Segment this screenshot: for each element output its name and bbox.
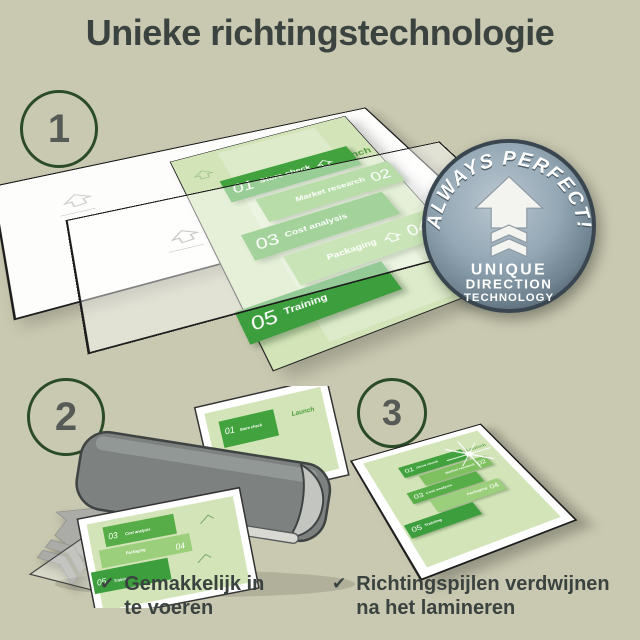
caption-text: Gemakkelijk in te voeren <box>124 572 264 620</box>
band-number: 04 <box>488 482 501 490</box>
caption-line1: Gemakkelijk in <box>124 572 264 596</box>
step-1-circle: 1 <box>20 90 98 168</box>
caption-step3: ✔ Richtingspijlen verdwijnen na het lami… <box>332 572 610 620</box>
band-number: 05 <box>247 307 282 334</box>
badge-line3: TECHNOLOGY <box>464 292 554 304</box>
watermark-arrow-icon <box>190 167 217 182</box>
infographic: Unieke richtingstechnologie 1 Launch 01 … <box>0 0 640 640</box>
caption-line2: te voeren <box>124 596 264 620</box>
step-3-number: 3 <box>382 392 402 434</box>
check-icon: ✔ <box>332 572 346 620</box>
laminated-document-content: Launch 01 Store check Market research 02… <box>363 431 561 568</box>
badge-line2: DIRECTION <box>466 276 553 291</box>
caption-text: Richtingspijlen verdwijnen na het lamine… <box>356 572 609 620</box>
band-number: 01 <box>403 467 415 474</box>
caption-line1: Richtingspijlen verdwijnen <box>356 572 609 596</box>
band-label: Store check <box>416 461 440 470</box>
step-1-number: 1 <box>48 107 70 152</box>
band-number: 03 <box>412 492 425 500</box>
caption-line2: na het lamineren <box>356 596 609 620</box>
page-title: Unieke richtingstechnologie <box>0 12 640 54</box>
always-perfect-badge: ALWAYS PERFECT! ALWAYS PERFECT! UNIQUE D… <box>420 137 598 315</box>
step-3-circle: 3 <box>357 378 427 448</box>
band-number: 05 <box>410 524 424 534</box>
caption-step2: ✔ Gemakkelijk in te voeren <box>100 572 264 620</box>
pouch-flap <box>25 539 91 601</box>
check-icon: ✔ <box>100 572 114 620</box>
band-label: Training <box>424 519 443 528</box>
band-label: Packaging <box>466 487 488 496</box>
